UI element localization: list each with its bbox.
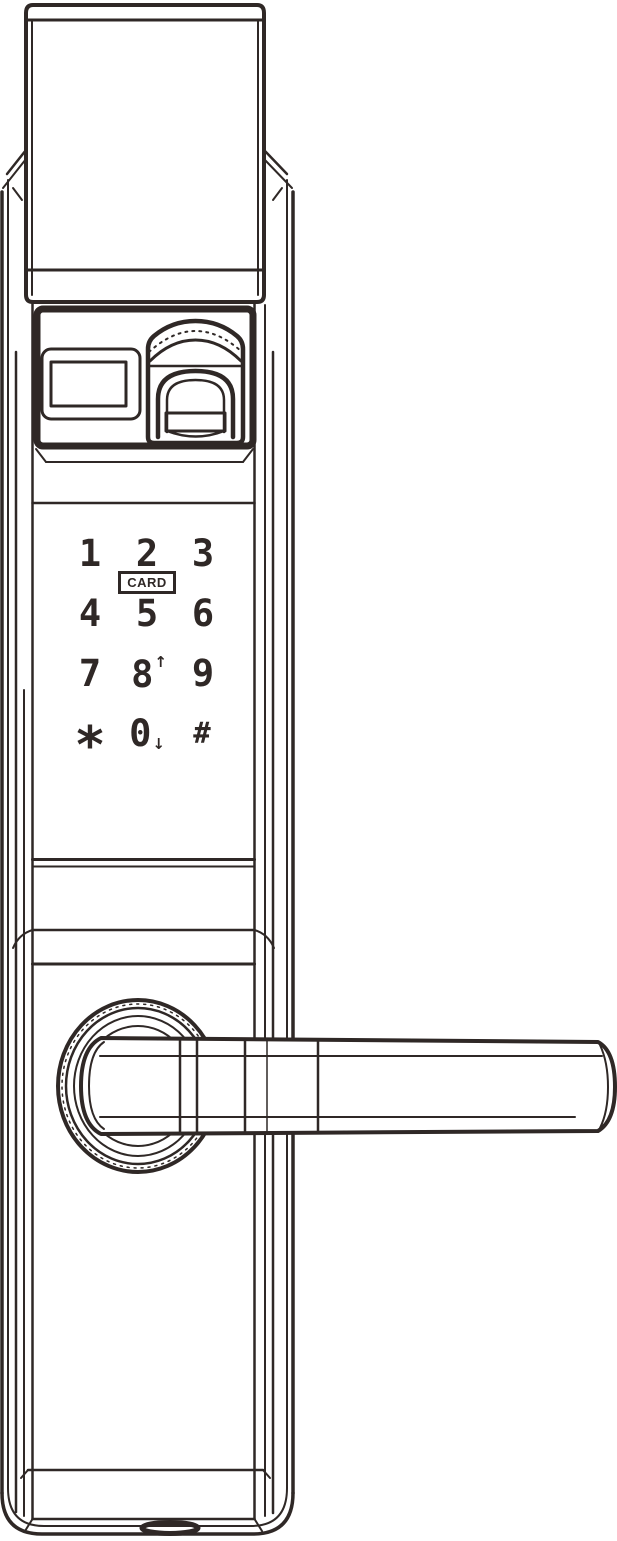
keypad-key-star: * [65,710,115,756]
up-arrow-icon: ↑ [154,655,167,670]
down-arrow-icon: ↓ [152,737,165,752]
keypad-key-9: 9 [178,650,228,696]
keypad-key-4: 4 [65,590,115,636]
handle-lever [81,1038,615,1134]
key-label: 5 [136,595,158,632]
keypad-key-hash: # [177,710,227,756]
keypad-key-3: 3 [178,530,228,576]
key-label: 1 [79,535,101,572]
door-handle [58,1000,615,1172]
keypad-key-8: 8↑ [124,651,174,697]
smart-lock-line-drawing: 1 2 3 CARD 4 5 6 7 8↑ 9 * 0↓ # [0,0,617,1541]
key-label: 8 [131,656,153,693]
keypad-key-5: 5 [122,590,172,636]
card-label-text: CARD [127,576,167,589]
key-label: 0 [129,715,151,752]
bottom-port [142,1523,198,1534]
key-label: 7 [79,655,101,692]
fingerprint-reader [148,321,243,443]
keypad-key-6: 6 [178,590,228,636]
key-label: # [193,719,210,748]
key-label: 3 [192,535,214,572]
keypad-key-2: 2 [122,530,172,576]
key-label: 9 [192,655,214,692]
top-cover [26,5,264,302]
key-label: 2 [136,535,158,572]
display-window [42,349,140,419]
display-panel [37,309,253,446]
keypad-key-1: 1 [65,530,115,576]
key-label: 6 [192,595,214,632]
key-label: 4 [79,595,101,632]
keypad-key-7: 7 [65,650,115,696]
keypad-key-0: 0↓ [122,710,172,756]
